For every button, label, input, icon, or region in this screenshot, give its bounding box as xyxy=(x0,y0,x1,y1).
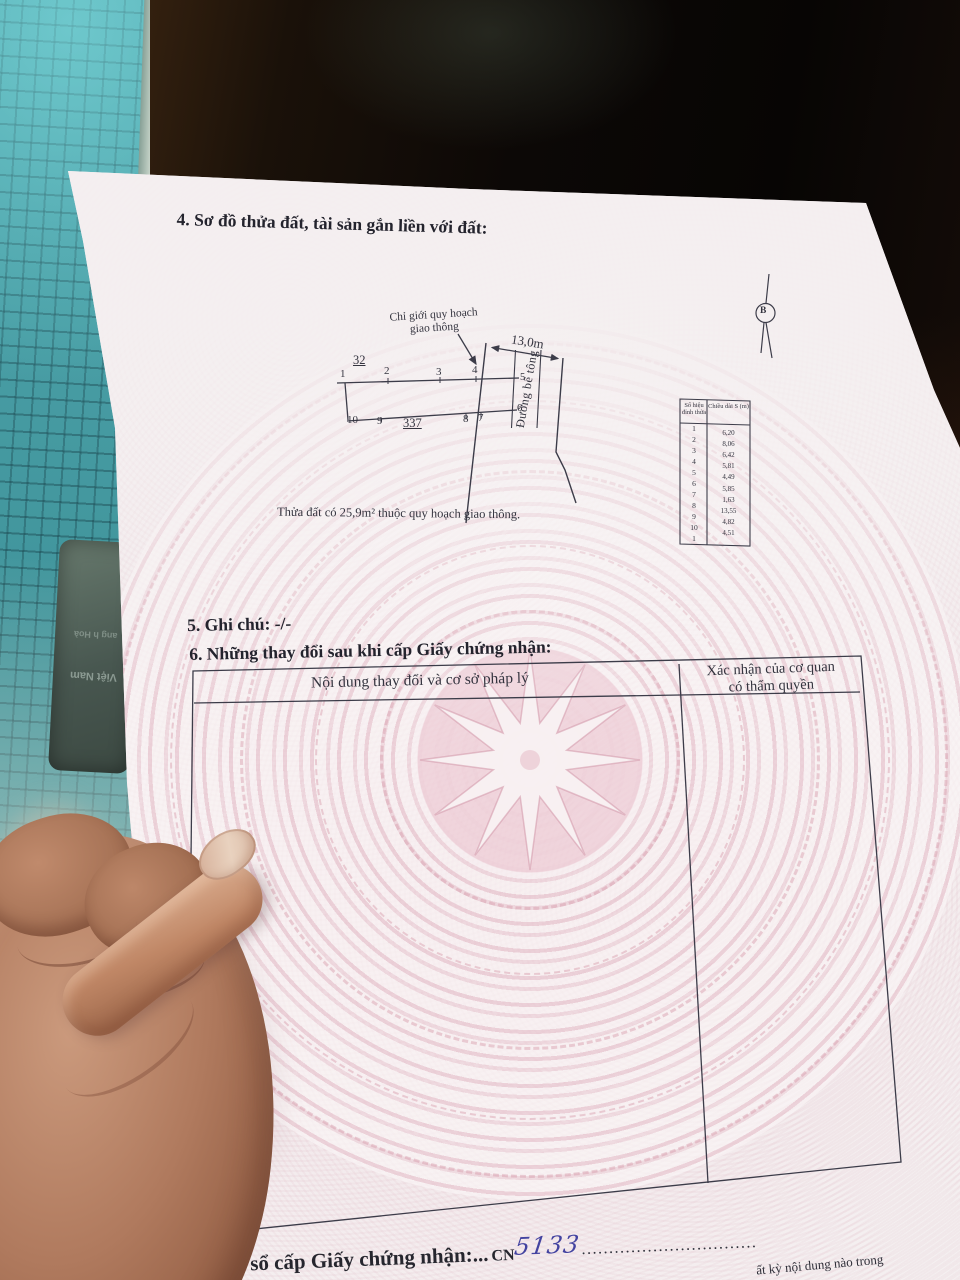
vertex-id: 4 xyxy=(692,457,696,466)
vertex-table-header-col2: Chiều dài S (m) xyxy=(707,403,750,410)
edge-length: 6,20 xyxy=(722,429,734,437)
vertex-label: 6 xyxy=(517,403,522,414)
edge-length: 8,06 xyxy=(722,440,734,448)
vertex-id: 2 xyxy=(692,435,696,444)
photo-scene: Việt Nam ang h Hoà xyxy=(0,0,960,1280)
vertex-id: 1 xyxy=(692,424,696,433)
vertex-table-header-col1: Số hiệu đỉnh thửa xyxy=(681,402,707,416)
vertex-id: 8 xyxy=(692,501,696,510)
vertex-id: 1 xyxy=(692,534,696,543)
vertex-label: 10 xyxy=(347,414,358,426)
vertex-id: 10 xyxy=(690,523,698,532)
handwritten-registry-number: 5133 xyxy=(512,1230,581,1261)
vertex-table-length-column: 6,20 8,06 6,42 5,81 4,49 5,85 1,63 13,55… xyxy=(707,429,750,537)
adjacent-parcel-number-bottom: 337 xyxy=(403,416,422,431)
registry-series-prefix: CN xyxy=(491,1247,515,1266)
vertex-label: 8 xyxy=(463,413,469,425)
edge-length: 6,42 xyxy=(722,451,734,459)
vertex-label: 4 xyxy=(472,364,478,376)
vertex-id: 5 xyxy=(692,468,696,477)
edge-length: 4,51 xyxy=(722,529,734,537)
planning-boundary-label-line2: giao thông xyxy=(410,320,460,335)
vertex-id: 6 xyxy=(692,479,696,488)
section5-title: 5. Ghi chú: -/- xyxy=(187,613,291,636)
section5-label: 5. Ghi chú: xyxy=(187,614,270,635)
changes-table-col2-header: Xác nhận của cơ quan có thẩm quyền xyxy=(689,658,852,697)
vertex-label: 5 xyxy=(520,372,525,383)
vertex-label: 7 xyxy=(478,412,484,424)
edge-length: 5,81 xyxy=(722,462,734,470)
vertex-label: 2 xyxy=(384,365,390,377)
id-card-line: ang h Hoà xyxy=(74,629,118,641)
vertex-label: 3 xyxy=(436,366,442,378)
vertex-label: 9 xyxy=(377,415,383,427)
changes-table-lines xyxy=(187,656,901,1236)
edge-length: 5,85 xyxy=(722,485,734,493)
edge-length: 13,55 xyxy=(721,507,737,515)
vertex-id: 9 xyxy=(692,512,696,521)
edge-length: 4,82 xyxy=(722,518,734,526)
edge-length: 4,49 xyxy=(722,473,734,481)
vertex-table-id-column: 1 2 3 4 5 6 7 8 9 10 1 xyxy=(681,423,707,544)
plot-boundary xyxy=(337,376,519,423)
north-arrow xyxy=(756,274,775,358)
vertex-id: 3 xyxy=(692,446,696,455)
dotted-fill-line: ................................ xyxy=(581,1234,758,1259)
changes-table-col2-line2: có thẩm quyền xyxy=(728,676,814,695)
edge-length: 1,63 xyxy=(722,496,734,504)
planning-area-note: Thửa đất có 25,9m² thuộc quy hoạch giao … xyxy=(277,505,520,523)
adjacent-parcel-number-top: 32 xyxy=(353,353,366,368)
planning-boundary-arrow xyxy=(458,334,476,364)
vertex-id: 7 xyxy=(692,490,696,499)
road-edges xyxy=(466,343,576,523)
id-card-line: Việt Nam xyxy=(70,669,117,683)
north-letter: B xyxy=(760,306,766,316)
section5-value: -/- xyxy=(275,613,292,633)
vertex-label: 1 xyxy=(340,368,346,380)
changes-table-col2-line1: Xác nhận của cơ quan xyxy=(706,659,835,679)
